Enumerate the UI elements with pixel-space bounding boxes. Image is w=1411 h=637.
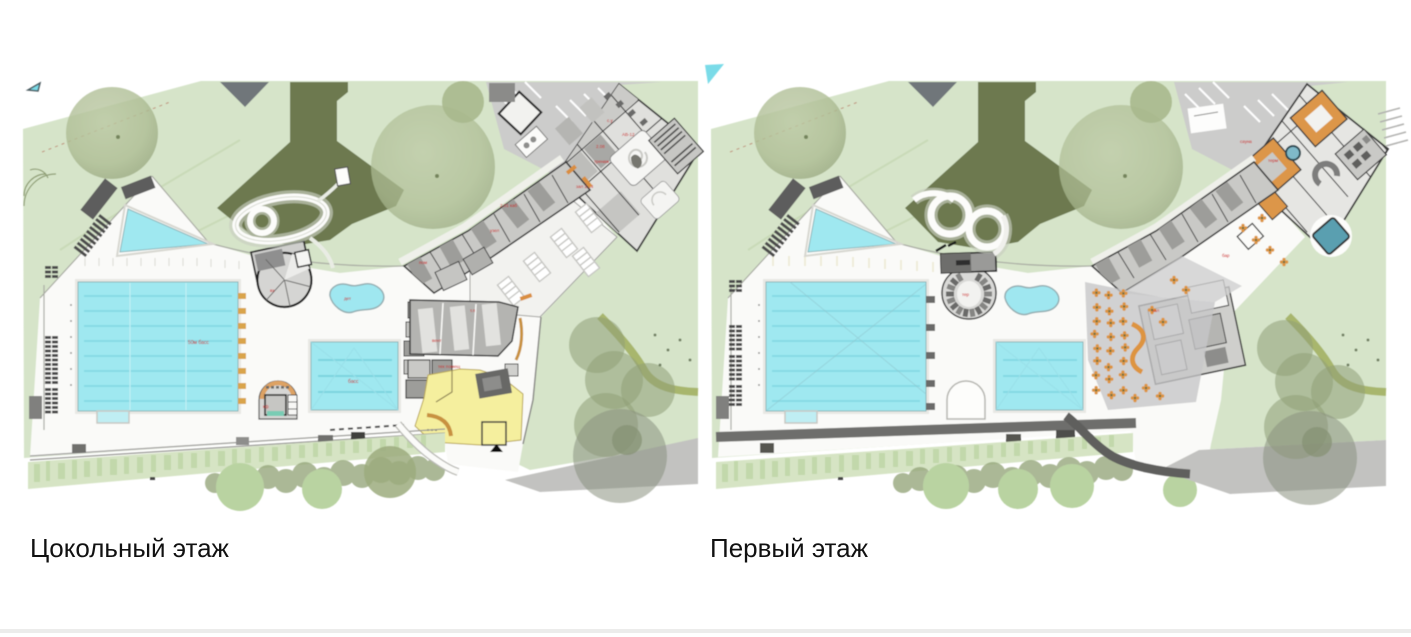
svg-text:тех помещ: тех помещ xyxy=(438,364,460,369)
svg-text:бар: бар xyxy=(1222,253,1230,258)
svg-text:с.у: с.у xyxy=(607,118,614,123)
svg-text:2.01 каб: 2.01 каб xyxy=(500,203,518,208)
svg-text:50м басс: 50м басс xyxy=(188,340,209,346)
svg-text:тренаж: тренаж xyxy=(594,159,609,164)
svg-text:вх: вх xyxy=(270,288,275,293)
svg-text:2.08: 2.08 xyxy=(596,144,605,149)
svg-text:т.п: т.п xyxy=(470,308,476,313)
svg-text:Цокольный этаж: Цокольный этаж xyxy=(30,533,230,563)
svg-text:зал: зал xyxy=(1152,308,1160,313)
svg-text:узел: узел xyxy=(490,228,500,233)
svg-text:терм: терм xyxy=(1268,158,1278,163)
svg-text:АВ-12: АВ-12 xyxy=(622,132,635,137)
svg-text:пом: пом xyxy=(419,260,427,265)
svg-text:сауна: сауна xyxy=(1240,139,1252,144)
svg-text:тер: тер xyxy=(962,292,970,297)
svg-text:кф: кф xyxy=(263,404,269,409)
svg-text:вент: вент xyxy=(432,338,441,343)
svg-text:Первый этаж: Первый этаж xyxy=(710,533,869,563)
svg-text:басс: басс xyxy=(348,379,359,385)
svg-text:дет: дет xyxy=(344,296,351,301)
